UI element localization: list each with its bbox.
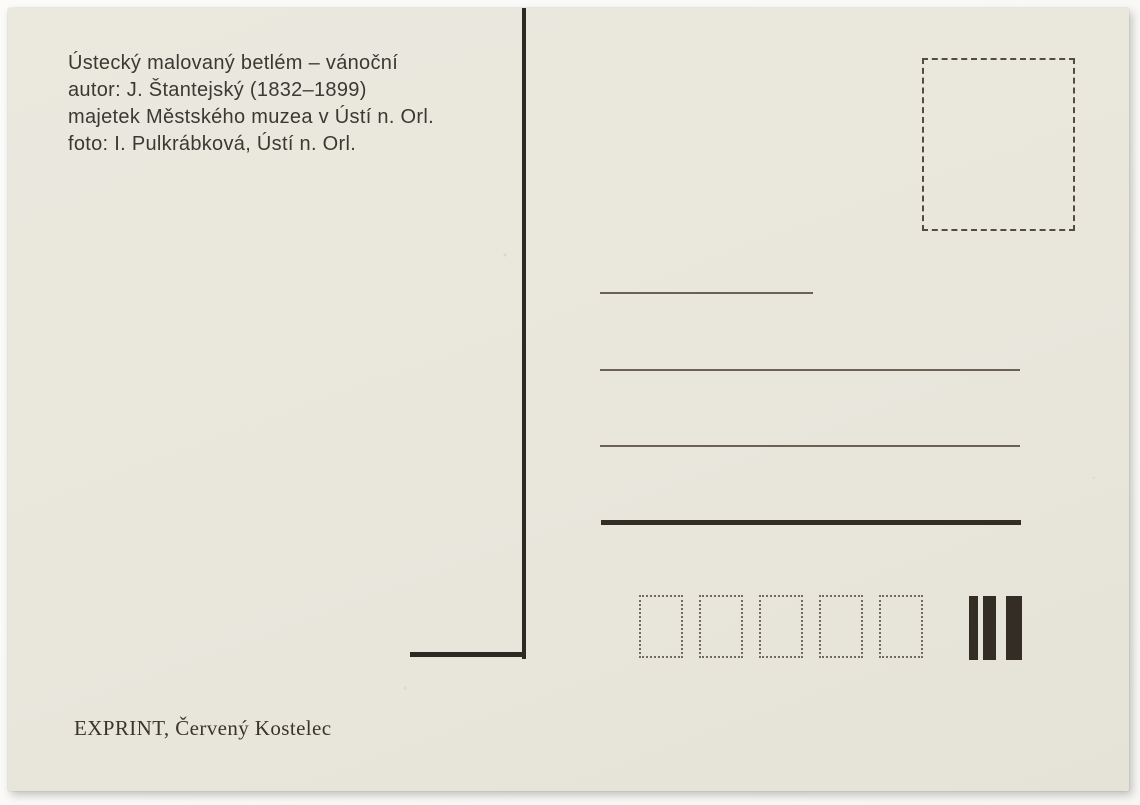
caption-line-photo: foto: I. Pulkrábková, Ústí n. Orl. [68, 131, 434, 158]
postal-code-box [819, 595, 863, 658]
postal-code-box [879, 595, 923, 658]
address-line-2 [600, 369, 1020, 371]
caption-line-owner: majetek Městského muzea v Ústí n. Orl. [68, 104, 434, 131]
postal-code-box [639, 595, 683, 658]
divider-foot-line [410, 652, 526, 657]
postal-code-boxes [639, 595, 934, 659]
address-line-1 [600, 292, 813, 294]
postal-code-box [699, 595, 743, 658]
caption-line-title: Ústecký malovaný betlém – vánoční [68, 50, 434, 77]
caption-line-author: autor: J. Štantejský (1832–1899) [68, 77, 434, 104]
stamp-box [922, 58, 1075, 231]
postal-code-box [759, 595, 803, 658]
sorting-bars [969, 596, 1031, 660]
postcard-photo: Ústecký malovaný betlém – vánoční autor:… [0, 0, 1140, 805]
address-line-bottom [601, 520, 1021, 525]
sorting-bar [983, 596, 996, 660]
center-divider-line [522, 8, 526, 659]
caption-block: Ústecký malovaný betlém – vánoční autor:… [68, 50, 434, 158]
sorting-bar [969, 596, 978, 660]
printer-imprint: EXPRINT, Červený Kostelec [74, 716, 331, 741]
sorting-bar [1006, 596, 1022, 660]
postcard-back: Ústecký malovaný betlém – vánoční autor:… [8, 8, 1129, 791]
address-line-3 [600, 445, 1020, 447]
